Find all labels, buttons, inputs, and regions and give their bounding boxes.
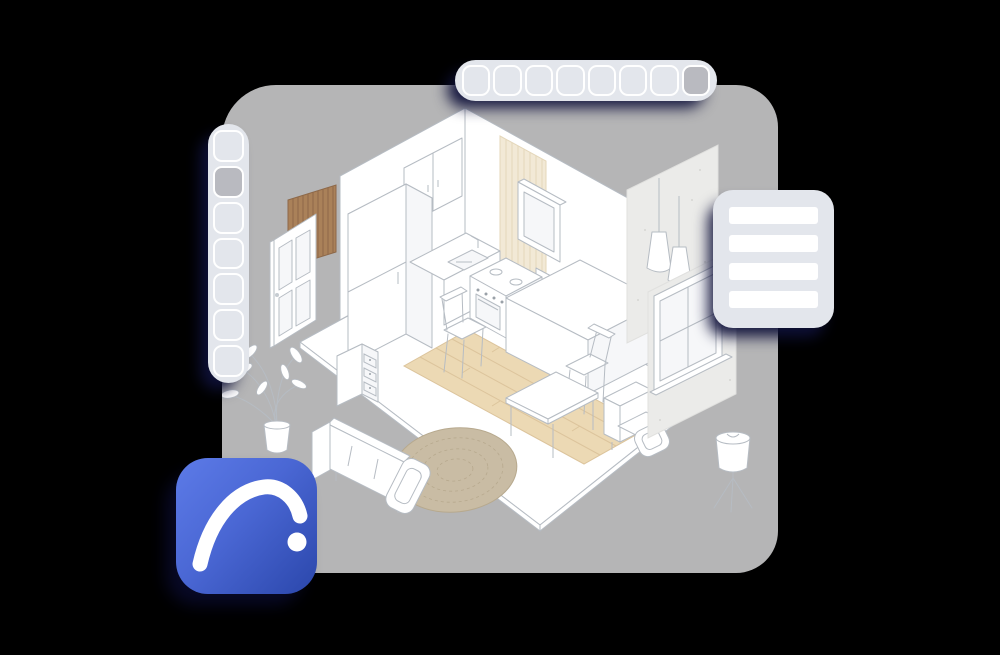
left-wall bbox=[340, 108, 465, 320]
toolbar-button[interactable] bbox=[213, 309, 244, 341]
wood-slat-panel bbox=[288, 185, 336, 267]
toolbar-button[interactable] bbox=[213, 345, 244, 377]
stove bbox=[470, 258, 542, 338]
toolbar-button[interactable] bbox=[213, 238, 244, 270]
toolbar-button[interactable] bbox=[525, 65, 553, 96]
pendant-lamps bbox=[647, 178, 691, 284]
concrete-panel-pendants bbox=[627, 145, 718, 343]
archicad-app-icon[interactable] bbox=[176, 458, 317, 594]
sofa bbox=[312, 418, 434, 517]
toolbar-button-active[interactable] bbox=[682, 65, 710, 96]
toolbar-button[interactable] bbox=[619, 65, 647, 96]
toolbar-button[interactable] bbox=[213, 273, 244, 305]
panel-row[interactable] bbox=[729, 263, 818, 280]
toolbar-button[interactable] bbox=[556, 65, 584, 96]
toolbar-button-active[interactable] bbox=[213, 166, 244, 198]
door bbox=[270, 214, 316, 348]
floor-lamp bbox=[714, 432, 752, 512]
toolbar-button[interactable] bbox=[588, 65, 616, 96]
armchair bbox=[604, 382, 673, 460]
tile-backsplash bbox=[500, 136, 546, 300]
tall-cabinet bbox=[348, 184, 432, 364]
toolbar-button[interactable] bbox=[462, 65, 490, 96]
list-panel[interactable] bbox=[713, 190, 834, 328]
coffee-table bbox=[506, 372, 598, 458]
left-toolbar[interactable] bbox=[208, 124, 249, 383]
panel-row[interactable] bbox=[729, 291, 818, 308]
drawer-unit bbox=[337, 344, 378, 406]
wood-floor-strip bbox=[404, 330, 648, 464]
floor bbox=[300, 252, 700, 531]
toolbar-button[interactable] bbox=[213, 202, 244, 234]
wall-cabinet bbox=[518, 179, 566, 262]
dining-chair-left bbox=[440, 287, 486, 378]
top-toolbar[interactable] bbox=[455, 60, 717, 101]
rug bbox=[389, 422, 521, 519]
toolbar-button[interactable] bbox=[650, 65, 678, 96]
archicad-logo-arc-icon bbox=[176, 458, 317, 594]
wall-shelf bbox=[536, 268, 568, 302]
sink-counter bbox=[410, 233, 500, 325]
toolbar-button[interactable] bbox=[213, 130, 244, 162]
upper-cabinets bbox=[404, 138, 462, 226]
panel-row[interactable] bbox=[729, 207, 818, 224]
panel-row[interactable] bbox=[729, 235, 818, 252]
toolbar-button[interactable] bbox=[493, 65, 521, 96]
kitchen-island bbox=[506, 260, 662, 394]
right-wall bbox=[465, 108, 655, 370]
dining-chair-right bbox=[566, 324, 615, 414]
